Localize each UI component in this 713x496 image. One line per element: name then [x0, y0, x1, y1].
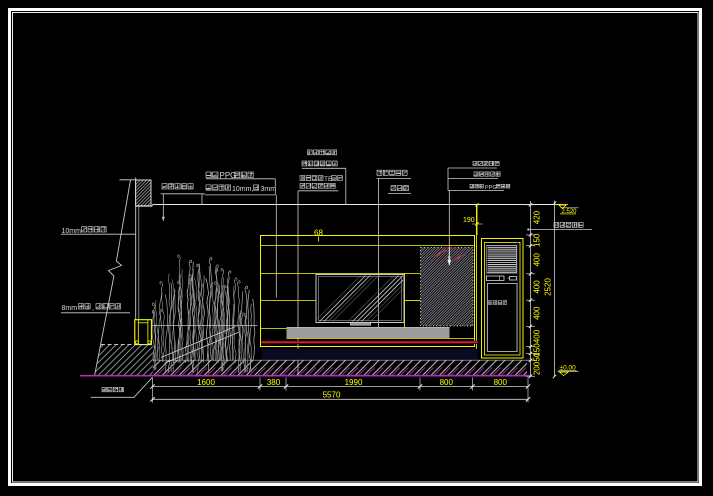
svg-text:800: 800 [494, 378, 508, 387]
svg-text:150: 150 [533, 233, 542, 247]
svg-text:200: 200 [533, 361, 542, 375]
svg-text:400: 400 [533, 280, 542, 294]
svg-text:PPG: PPG [485, 185, 497, 191]
svg-text:68: 68 [314, 229, 323, 238]
svg-text:800: 800 [440, 378, 454, 387]
svg-text:1990: 1990 [345, 378, 363, 387]
svg-text:1600: 1600 [197, 378, 215, 387]
svg-text:2520: 2520 [544, 278, 553, 296]
svg-text:,: , [92, 305, 94, 312]
svg-text:400: 400 [533, 329, 542, 343]
svg-text:190: 190 [463, 217, 475, 224]
svg-text:50: 50 [533, 352, 542, 361]
svg-text:420: 420 [533, 210, 542, 224]
svg-text:400: 400 [533, 252, 542, 266]
svg-text:400: 400 [533, 306, 542, 320]
svg-text:3mm: 3mm [261, 186, 277, 193]
svg-text:10mm,: 10mm, [232, 186, 253, 193]
svg-text:380: 380 [267, 378, 281, 387]
svg-text:5570: 5570 [323, 391, 341, 400]
svg-text:8mm: 8mm [62, 305, 78, 312]
